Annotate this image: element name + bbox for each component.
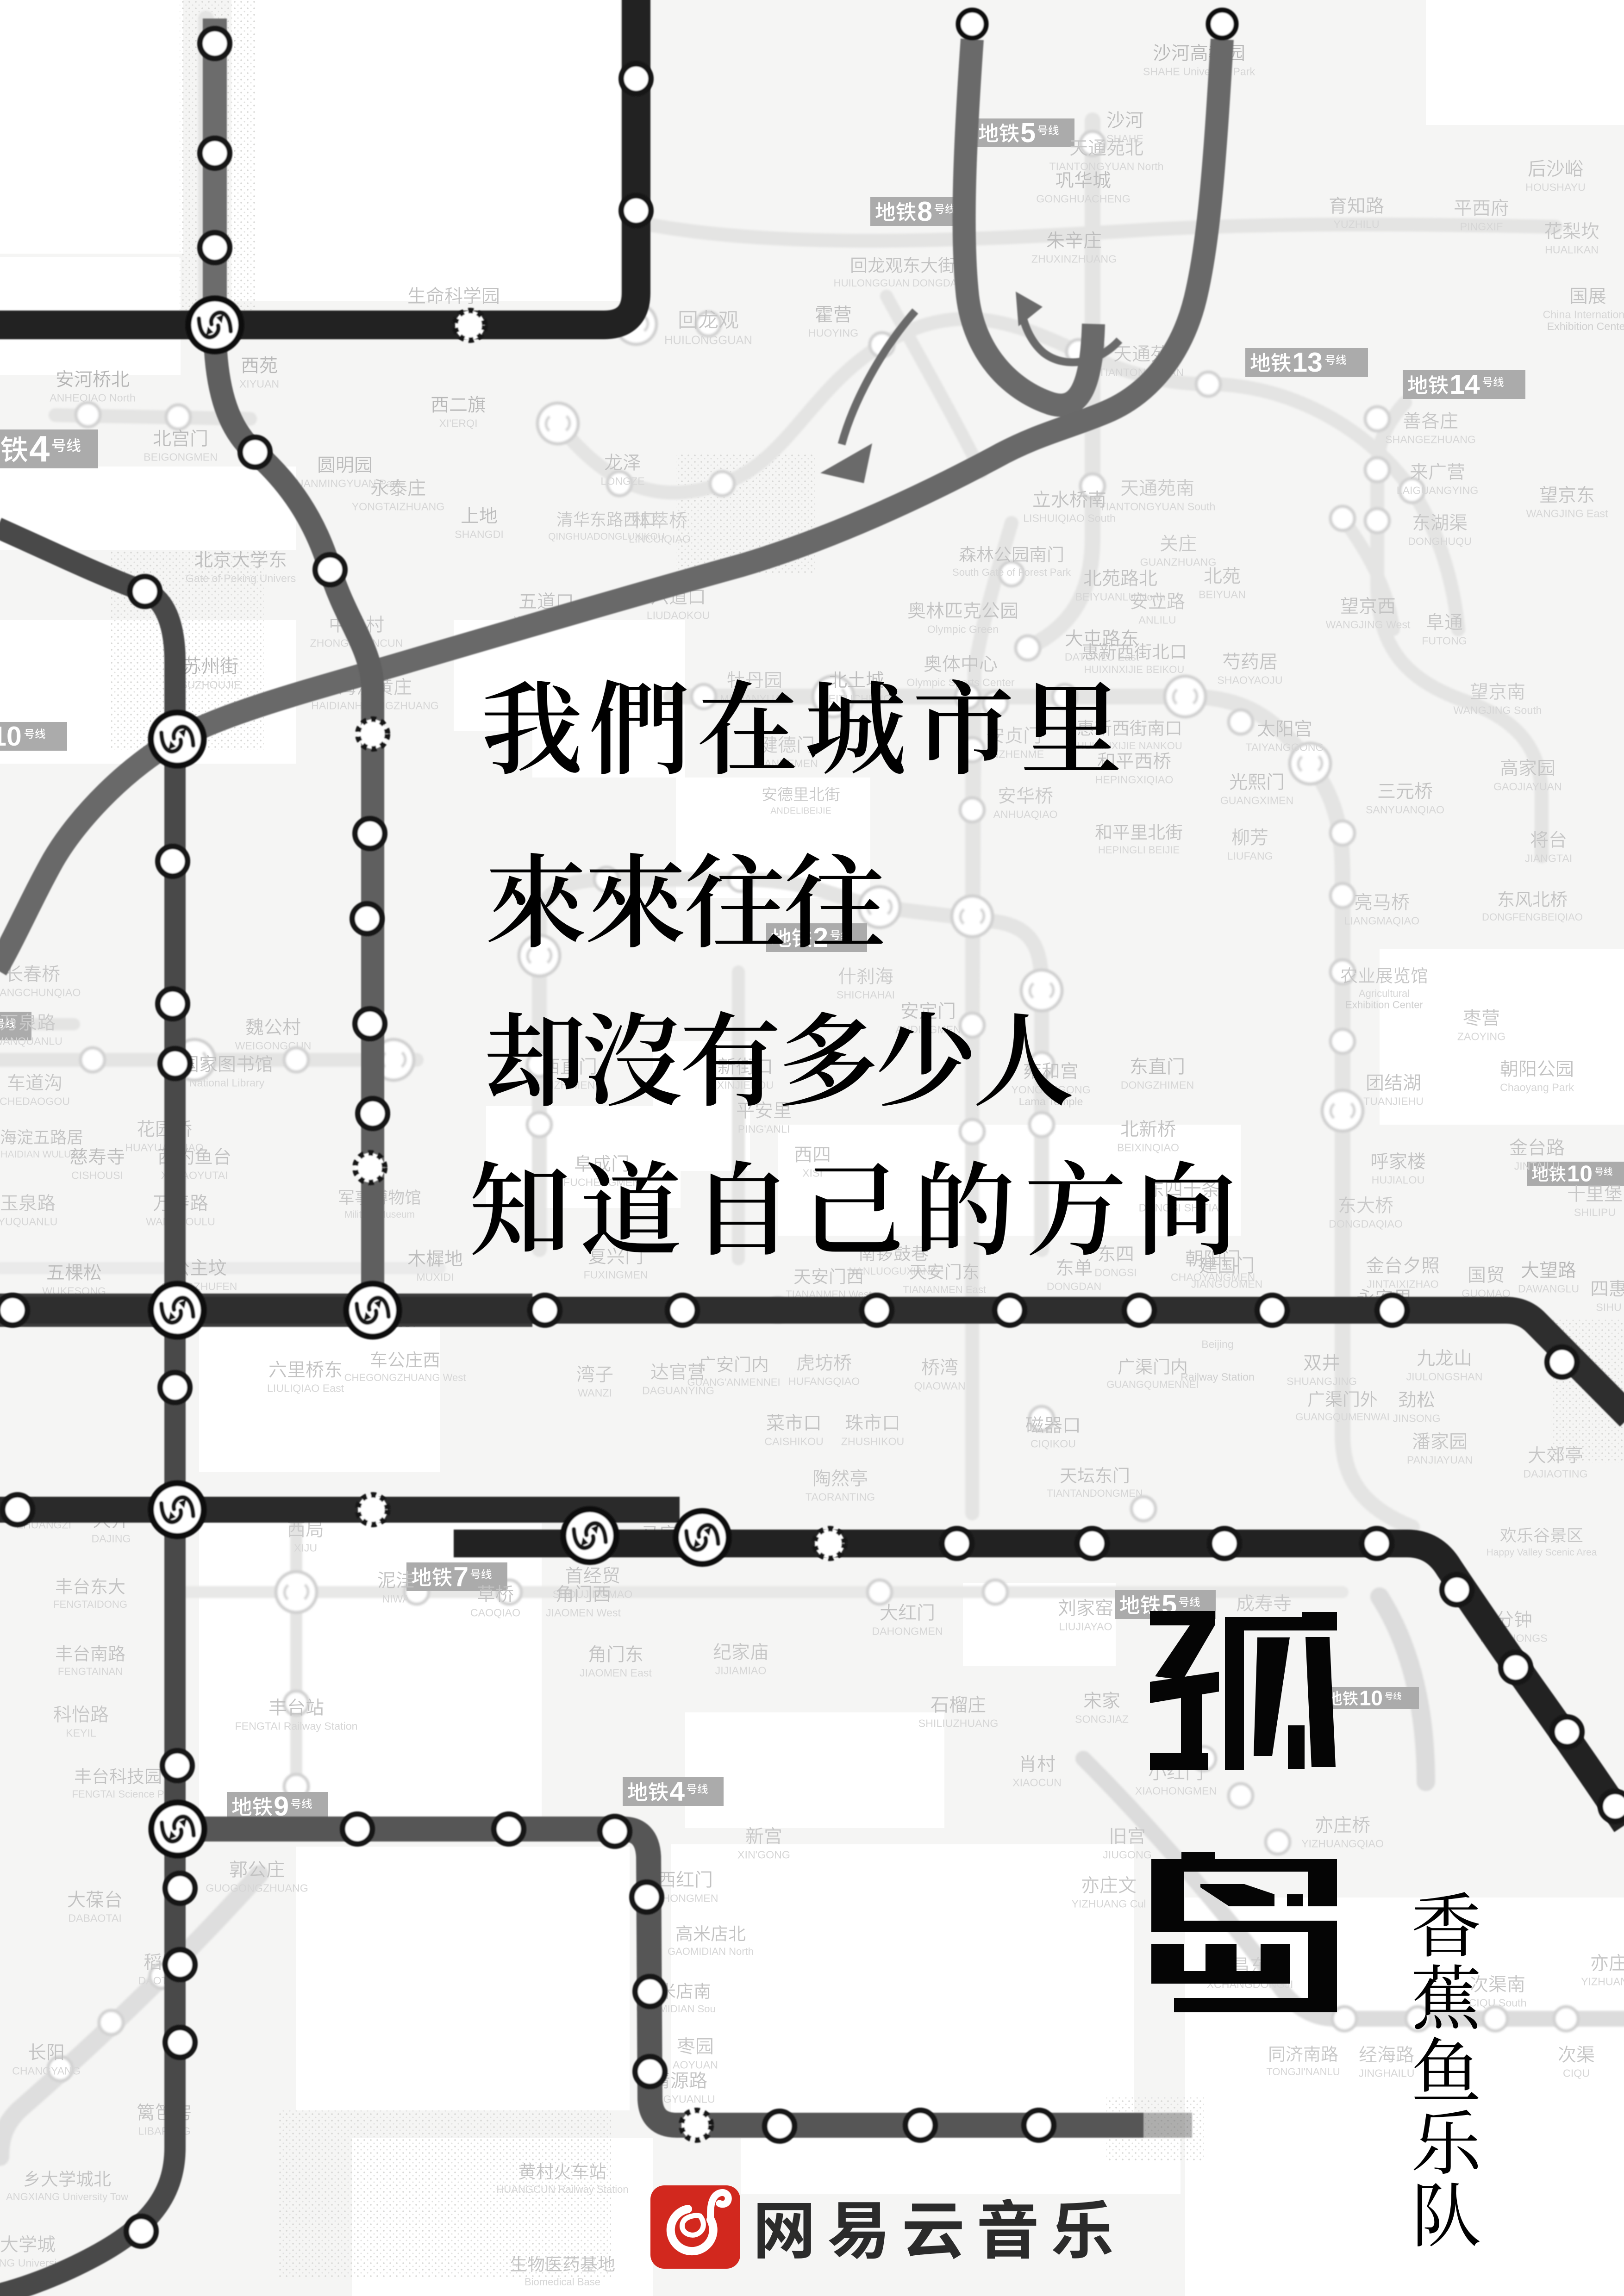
svg-text:10: 10 [0, 722, 22, 752]
svg-text:YIZHUANG: YIZHUANG [1581, 1975, 1624, 1987]
svg-text:HUANGCUN Railway Station: HUANGCUN Railway Station [496, 2184, 628, 2195]
svg-text:DAJING: DAJING [91, 1532, 131, 1544]
svg-text:HUJIALOU: HUJIALOU [1372, 1174, 1425, 1186]
svg-text:WEIGONGCUN: WEIGONGCUN [235, 1039, 312, 1052]
svg-text:TONGJI'NANLU: TONGJI'NANLU [1266, 2066, 1340, 2078]
svg-text:ZHUSHIKOU: ZHUSHIKOU [841, 1435, 905, 1447]
svg-text:JINGHAILU: JINGHAILU [1358, 2067, 1414, 2079]
svg-text:4: 4 [669, 1777, 685, 1807]
svg-text:LISHUIQIAO South: LISHUIQIAO South [1023, 512, 1116, 524]
svg-text:JINTAIXIZHAO: JINTAIXIZHAO [1367, 1278, 1438, 1290]
svg-text:JIJIAMIAO: JIJIAMIAO [715, 1664, 767, 1676]
svg-text:Chaoyang Park: Chaoyang Park [1500, 1081, 1574, 1093]
svg-text:FUTONG: FUTONG [1422, 635, 1467, 647]
svg-text:PINGXIF: PINGXIF [1460, 220, 1503, 232]
svg-text:WANZI: WANZI [578, 1387, 612, 1399]
svg-text:DAWANGLU: DAWANGLU [1518, 1282, 1579, 1294]
svg-text:HUILONGGUAN: HUILONGGUAN [664, 334, 752, 347]
svg-text:13: 13 [1292, 348, 1323, 378]
svg-text:Agricultural: Agricultural [1359, 988, 1410, 999]
svg-text:CHANGCHUNQIAO: CHANGCHUNQIAO [0, 986, 81, 998]
svg-text:XIYUAN: XIYUAN [239, 378, 279, 390]
svg-text:QIAOWAN: QIAOWAN [914, 1380, 965, 1392]
svg-text:ANGXIANG University Tow: ANGXIANG University Tow [6, 2191, 128, 2203]
svg-text:TIANANMEN East: TIANANMEN East [903, 1284, 986, 1295]
svg-text:CHEGONGZHUANG West: CHEGONGZHUANG West [344, 1372, 466, 1383]
svg-text:LINCUIQIAO: LINCUIQIAO [629, 533, 691, 545]
svg-text:DONGZHIMEN: DONGZHIMEN [1121, 1079, 1194, 1091]
svg-text:ANHUAQIAO: ANHUAQIAO [993, 808, 1057, 820]
svg-text:SONGJIAZ: SONGJIAZ [1075, 1713, 1129, 1725]
svg-text:LIUJIAYAO: LIUJIAYAO [1059, 1620, 1112, 1632]
svg-text:GUOGONGZHUANG: GUOGONGZHUANG [206, 1882, 308, 1894]
svg-text:ANHEQIAO North: ANHEQIAO North [50, 392, 136, 404]
svg-text:SHAOYAOJU: SHAOYAOJU [1217, 674, 1282, 686]
svg-text:CHEDAOGOU: CHEDAOGOU [0, 1095, 70, 1107]
svg-text:SHANGDI: SHANGDI [455, 528, 504, 540]
svg-text:HUOYING: HUOYING [808, 327, 858, 339]
svg-text:2: 2 [813, 923, 828, 953]
svg-text:XI'ERQI: XI'ERQI [439, 417, 477, 429]
svg-text:GAOJIAYUAN: GAOJIAYUAN [1493, 780, 1562, 792]
svg-text:MUXIDI: MUXIDI [416, 1271, 454, 1283]
svg-text:JIAOMEN West: JIAOMEN West [546, 1606, 621, 1618]
svg-text:SANYUANQIAO: SANYUANQIAO [1366, 803, 1444, 815]
svg-text:DONGFENGBEIQIAO: DONGFENGBEIQIAO [1482, 911, 1583, 923]
svg-text:FENGTAI Railway Station: FENGTAI Railway Station [235, 1720, 357, 1732]
svg-text:National Library: National Library [189, 1076, 265, 1089]
svg-text:BEIYUAN: BEIYUAN [1199, 588, 1246, 600]
svg-text:JIULONGSHAN: JIULONGSHAN [1406, 1370, 1483, 1382]
svg-text:WANQUANLU: WANQUANLU [0, 1035, 62, 1047]
svg-text:BEIXINQIAO: BEIXINQIAO [1117, 1141, 1179, 1153]
svg-text:YIZHUANG Cul: YIZHUANG Cul [1071, 1898, 1146, 1910]
svg-text:FENGTAIDONG: FENGTAIDONG [53, 1599, 127, 1610]
svg-text:HAIDIAN WULUJU: HAIDIAN WULUJU [0, 1149, 82, 1160]
svg-text:JIANGUOMEN: JIANGUOMEN [1191, 1278, 1263, 1290]
svg-text:14: 14 [1449, 370, 1480, 400]
svg-text:JINTAILU: JINTAILU [1514, 1160, 1560, 1172]
svg-text:PANJIAYUAN: PANJIAYUAN [1407, 1454, 1473, 1466]
svg-text:GUANGXIMEN: GUANGXIMEN [1220, 794, 1293, 806]
svg-text:TAORANTING: TAORANTING [806, 1491, 875, 1503]
svg-text:DAHONGMEN: DAHONGMEN [872, 1625, 943, 1637]
svg-text:SHUANGJING: SHUANGJING [1287, 1375, 1357, 1387]
svg-text:XIJU: XIJU [294, 1542, 317, 1554]
svg-text:DONGDAQIAO: DONGDAQIAO [1329, 1218, 1403, 1230]
svg-text:PING'ANLI: PING'ANLI [738, 1123, 790, 1135]
svg-text:WANGJING West: WANGJING West [1326, 618, 1411, 630]
svg-text:DONGHUQU: DONGHUQU [1408, 535, 1472, 547]
svg-text:FENGTAI Science P: FENGTAI Science P [72, 1788, 164, 1800]
svg-text:China International: China International [1543, 308, 1624, 320]
svg-text:Exhibition Center: Exhibition Center [1345, 999, 1423, 1010]
svg-text:ANDELIBEIJIE: ANDELIBEIJIE [770, 806, 831, 816]
svg-text:DAGUANYING: DAGUANYING [642, 1384, 714, 1396]
svg-text:XINJIEKOU: XINJIEKOU [717, 1079, 774, 1091]
svg-text:7: 7 [453, 1562, 468, 1592]
svg-text:SHILIUZHUANG: SHILIUZHUANG [918, 1717, 999, 1729]
svg-text:South Gate of Forest Park: South Gate of Forest Park [952, 566, 1071, 578]
svg-text:HOUSHAYU: HOUSHAYU [1525, 181, 1586, 193]
svg-text:BEIGONGMEN: BEIGONGMEN [144, 451, 218, 463]
svg-text:CIQU: CIQU [1563, 2067, 1590, 2079]
svg-text:TIANTONGYUAN South: TIANTONGYUAN South [1099, 500, 1216, 512]
svg-text:JIUGONG: JIUGONG [1103, 1848, 1152, 1860]
svg-text:GUANZHUANG: GUANZHUANG [1140, 556, 1217, 568]
svg-text:SUZHOUJIE: SUZHOUJIE [180, 678, 241, 691]
svg-text:Olympic Green: Olympic Green [927, 623, 999, 635]
svg-text:CAOQIAO: CAOQIAO [470, 1606, 520, 1618]
svg-text:DAJIAOTING: DAJIAOTING [1523, 1468, 1587, 1480]
svg-text:HEPINGXIQIAO: HEPINGXIQIAO [1095, 773, 1174, 785]
svg-text:XIAOCUN: XIAOCUN [1012, 1776, 1062, 1788]
svg-text:GUANGQUMENWAI: GUANGQUMENWAI [1295, 1411, 1390, 1423]
svg-text:ZAOYING: ZAOYING [1457, 1030, 1505, 1042]
svg-text:TAIYANGGONG: TAIYANGGONG [1245, 741, 1324, 753]
svg-text:YUZHILU: YUZHILU [1333, 218, 1379, 230]
svg-text:DONGSI: DONGSI [1094, 1266, 1137, 1278]
svg-text:XIN'GONG: XIN'GONG [737, 1848, 790, 1860]
svg-text:SHILIPU: SHILIPU [1574, 1206, 1616, 1218]
svg-text:HUILONGGUAN DONGDAJIE: HUILONGGUAN DONGDAJIE [834, 277, 972, 289]
svg-text:LIANGMAQIAO: LIANGMAQIAO [1344, 915, 1419, 927]
svg-text:Railway Station: Railway Station [1181, 1371, 1255, 1383]
svg-text:SHAHE University Park: SHAHE University Park [1143, 65, 1255, 77]
svg-text:HUFANGQIAO: HUFANGQIAO [788, 1375, 860, 1387]
svg-text:SHICHAHAI: SHICHAHAI [837, 989, 895, 1001]
svg-text:JIAOMEN East: JIAOMEN East [580, 1667, 652, 1679]
svg-text:LAIGUANGYING: LAIGUANGYING [1397, 484, 1479, 496]
svg-text:LIULIQIAO East: LIULIQIAO East [267, 1382, 344, 1394]
svg-text:TIANTANDONGMEN: TIANTANDONGMEN [1047, 1487, 1143, 1499]
svg-text:YUQUANLU: YUQUANLU [0, 1215, 57, 1227]
svg-text:CHANGYANG: CHANGYANG [12, 2065, 81, 2077]
svg-text:CISHOUSI: CISHOUSI [71, 1169, 123, 1181]
svg-text:YIZHUANGQIAO: YIZHUANGQIAO [1301, 1837, 1384, 1849]
svg-text:10: 10 [1567, 1161, 1593, 1187]
svg-text:CIQU South: CIQU South [1468, 1997, 1526, 2009]
svg-text:HUIXINXIJIE BEIKOU: HUIXINXIJIE BEIKOU [1084, 664, 1185, 675]
svg-text:KEYIL: KEYIL [66, 1727, 96, 1739]
svg-text:DONGDAN: DONGDAN [1047, 1280, 1102, 1292]
svg-text:FENGTAINAN: FENGTAINAN [58, 1666, 123, 1677]
svg-text:AOYUAN: AOYUAN [673, 2059, 718, 2071]
svg-text:LONGZE: LONGZE [600, 475, 644, 487]
svg-text:SIHU: SIHU [1596, 1301, 1621, 1313]
svg-text:GONGHUACHENG: GONGHUACHENG [1036, 193, 1131, 205]
svg-text:JINSONG: JINSONG [1393, 1412, 1440, 1424]
svg-text:GAOMIDIAN North: GAOMIDIAN North [668, 1946, 754, 1957]
svg-text:WANGJING East: WANGJING East [1526, 507, 1608, 519]
svg-text:Gate of Peking Univers: Gate of Peking Univers [186, 572, 296, 584]
svg-text:WANGJING South: WANGJING South [1453, 704, 1542, 716]
svg-text:Exhibition Center: Exhibition Center [1547, 320, 1624, 332]
svg-text:Happy Valley Scenic Area: Happy Valley Scenic Area [1487, 1547, 1597, 1558]
svg-text:TUANJIEHU: TUANJIEHU [1363, 1095, 1424, 1107]
svg-text:FUXINGMEN: FUXINGMEN [583, 1269, 648, 1281]
svg-text:8: 8 [917, 197, 932, 227]
svg-text:10: 10 [1359, 1686, 1383, 1710]
svg-text:ANLILU: ANLILU [1138, 614, 1176, 626]
svg-text:DABAOTAI: DABAOTAI [68, 1912, 122, 1924]
svg-text:YONGTAIZHUANG: YONGTAIZHUANG [352, 500, 445, 512]
svg-text:LIUFANG: LIUFANG [1227, 850, 1273, 862]
svg-text:NIWA: NIWA [382, 1593, 410, 1605]
svg-text:4: 4 [29, 428, 50, 469]
svg-text:HEPINGLI BEIJIE: HEPINGLI BEIJIE [1098, 844, 1180, 856]
svg-text:Biomedical Base: Biomedical Base [525, 2276, 600, 2288]
svg-text:JIANGTAI: JIANGTAI [1525, 852, 1573, 864]
svg-text:Beijing: Beijing [1201, 1338, 1234, 1350]
svg-text:5: 5 [1020, 118, 1036, 148]
svg-text:SHANGEZHUANG: SHANGEZHUANG [1385, 433, 1476, 445]
svg-text:ZHUXINZHUANG: ZHUXINZHUANG [1031, 253, 1117, 265]
svg-text:HUALIKAN: HUALIKAN [1545, 243, 1599, 255]
svg-text:LIUDAOKOU: LIUDAOKOU [647, 609, 710, 621]
svg-text:TIANTONGYUAN North: TIANTONGYUAN North [1049, 160, 1164, 172]
svg-text:CAISHIKOU: CAISHIKOU [764, 1435, 824, 1447]
svg-text:XIAOHONGMEN: XIAOHONGMEN [1135, 1785, 1217, 1797]
svg-text:CIQIKOU: CIQIKOU [1031, 1437, 1076, 1450]
